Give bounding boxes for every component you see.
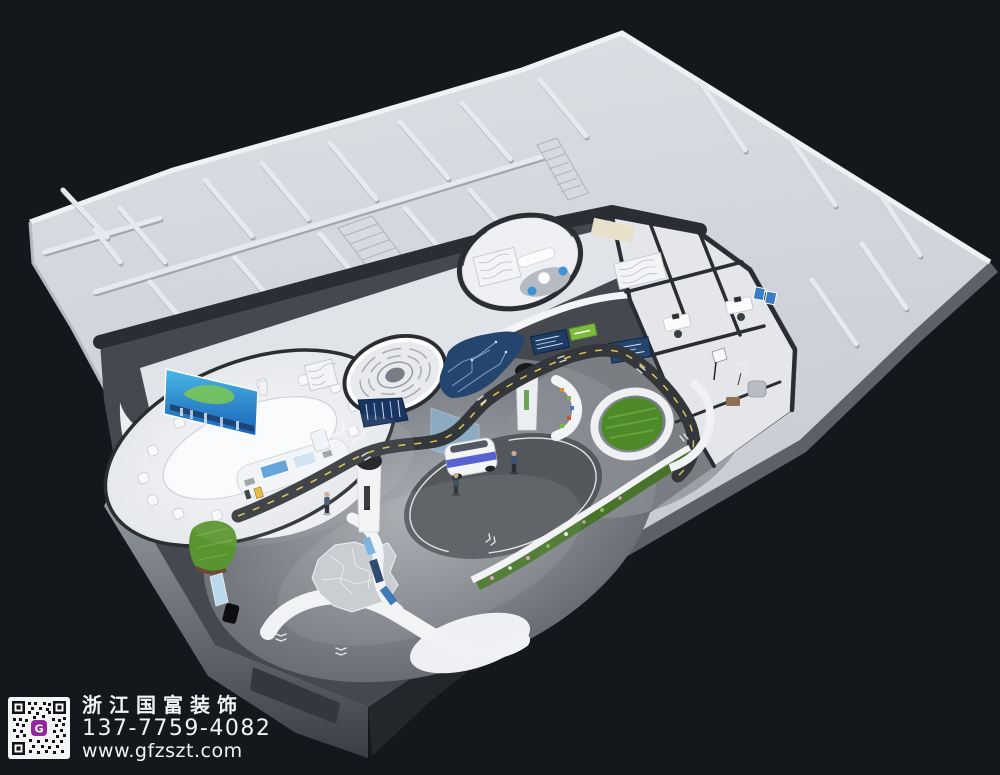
website-url: www.gfzszt.com	[82, 741, 271, 762]
round-table	[538, 272, 550, 284]
qr-code: G	[8, 697, 70, 759]
side-table	[726, 397, 740, 406]
screen-side-cabinet	[259, 381, 267, 395]
watermark: G 浙江国富装饰 137-7759-4082 www.gfzszt.com	[8, 694, 271, 762]
screenshot-root: G 浙江国富装饰 137-7759-4082 www.gfzszt.com	[0, 0, 1000, 775]
qr-logo-letter: G	[34, 723, 43, 736]
company-name: 浙江国富装饰	[82, 694, 271, 716]
armchair	[748, 381, 766, 397]
blue-ball-stool	[559, 267, 568, 276]
watermark-text: 浙江国富装饰 137-7759-4082 www.gfzszt.com	[82, 694, 271, 762]
floorplan-3d-render	[0, 0, 1000, 775]
qr-logo: G	[31, 720, 47, 736]
blue-ball-stool	[528, 287, 537, 296]
phone-number: 137-7759-4082	[82, 716, 271, 741]
